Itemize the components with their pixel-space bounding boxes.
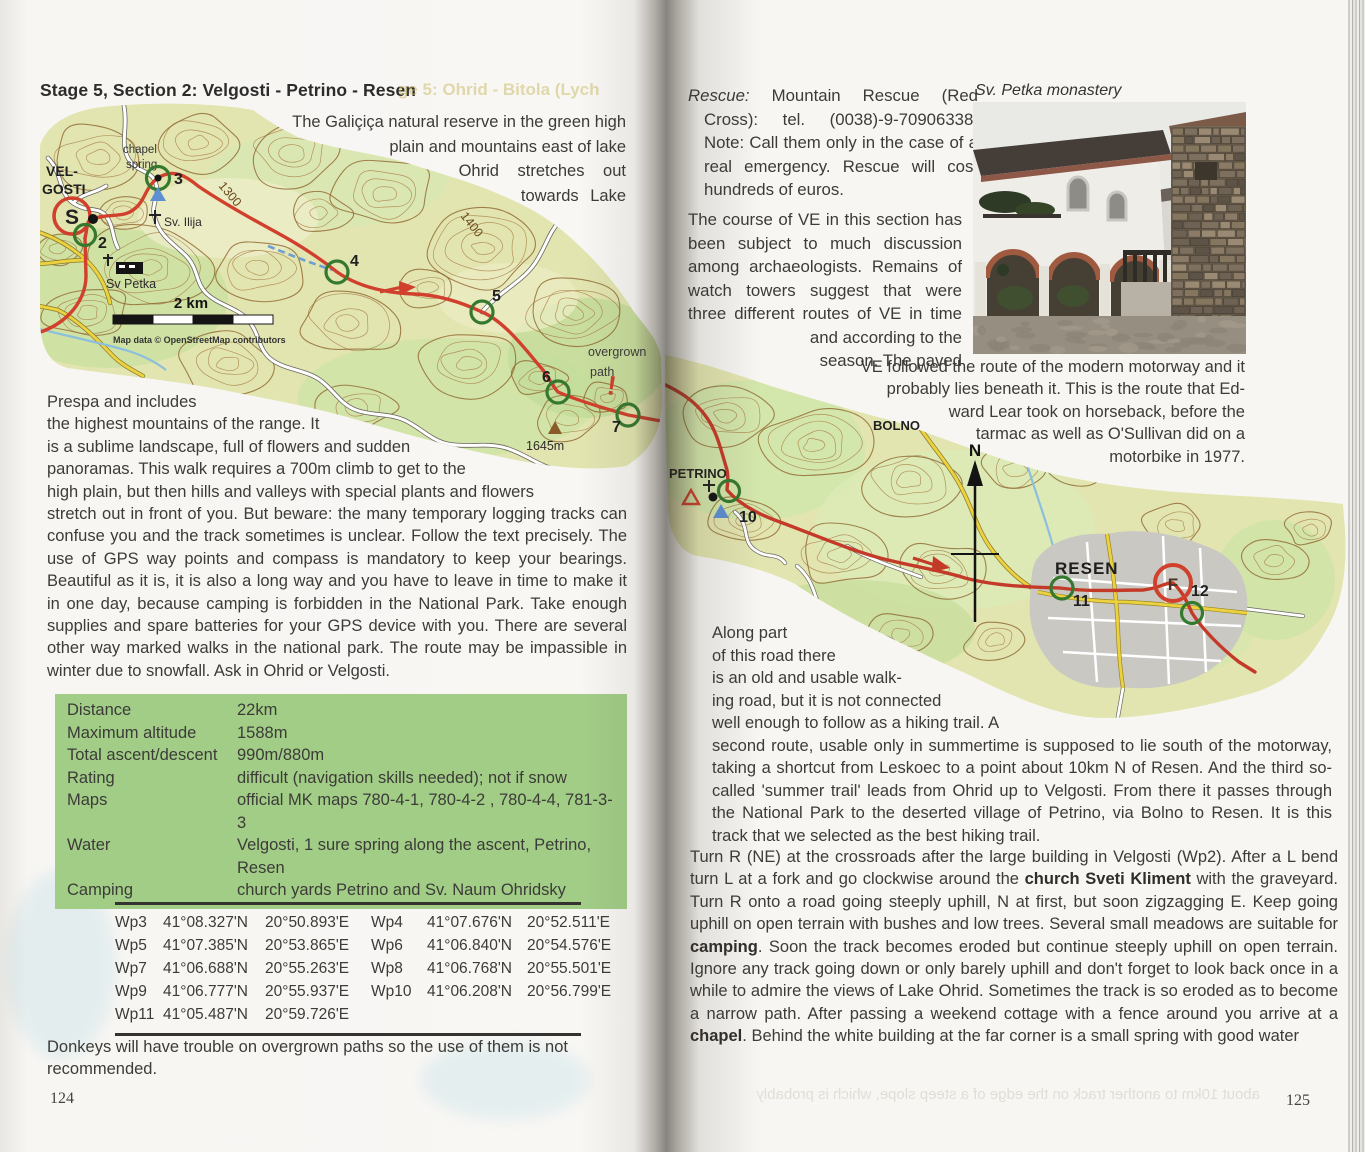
wp-id: Wp5 [115,934,163,957]
table-row: Wp1141°05.487'N20°59.726'E [115,1003,581,1026]
photo-caption: Sv. Petka monastery [975,82,1121,100]
table-row: Wp541°07.385'N20°53.865'E Wp641°06.840'N… [115,934,581,957]
text-line: Prespa and includes [47,391,627,413]
table-row: Wp741°06.688'N20°55.263'E Wp841°06.768'N… [115,957,581,980]
resen-label: RESEN [1055,559,1119,578]
wp-lat [427,1003,527,1026]
text-line: been subject to much discussion [688,232,962,256]
info-value: 1588m [237,722,617,745]
info-label: Water [67,834,237,879]
table-row: Wp941°06.777'N20°55.937'E Wp1041°06.208'… [115,980,581,1003]
along-road-rest: second route, usable only in summertime … [712,735,1332,847]
wp-lat: 41°08.327'N [163,911,265,934]
wp-lat: 41°06.840'N [427,934,527,957]
wp-lat: 41°07.676'N [427,911,527,934]
info-row: Water Velgosti, 1 sure spring along the … [67,834,617,879]
terrace [1121,282,1177,316]
text-line: probably lies beneath it. This is the ro… [830,378,1245,400]
wp-id [371,1003,427,1026]
sv-petka-label: Sv Petka [106,277,156,291]
velgosti-label-1: VEL- [46,163,78,179]
info-label: Rating [67,767,237,790]
waypoint-3-label: 3 [174,171,183,188]
wp-lat: 41°07.385'N [163,934,265,957]
info-value: official MK maps 780-4-1, 780-4-2 , 780-… [237,789,617,834]
column [975,262,986,316]
info-row: Total ascent/descent 990m/880m [67,744,617,767]
waypoint-11-label: 11 [1073,593,1090,610]
body-paragraph: Prespa and includes the highest mountain… [47,391,627,682]
info-label: Distance [67,699,237,722]
wp-id: Wp6 [371,934,427,957]
text-line: watch towers suggest that were [688,279,962,303]
info-value: church yards Petrino and Sv. Naum Ohrids… [237,879,617,902]
column [1039,266,1049,316]
petrino-label: PETRINO [669,466,727,481]
waypoint-table: Wp341°08.327'N20°50.893'E Wp441°07.676'N… [115,902,581,1036]
bold-camping: camping [690,938,758,956]
sv-ilija-label: Sv. Ilija [164,215,202,229]
wp-lat: 41°06.768'N [427,957,527,980]
arched-window [1068,177,1088,210]
wp-id: Wp8 [371,957,427,980]
wp-lon: 20°55.501'E [527,957,611,980]
info-label: Total ascent/descent [67,744,237,767]
donkeys-note: Donkeys will have trouble on overgrown p… [47,1036,635,1081]
page-stack-edge [1348,0,1365,1152]
directions-text: . Behind the white building at the far c… [742,1027,1299,1045]
intro-paragraph: The Galiçiça natural reserve in the gree… [252,110,626,208]
text-line: of this road there [712,645,1352,668]
showthrough-heading: ge 5: Ohrid - Bitola (Lych [398,80,600,100]
start-label: S [65,206,79,229]
route-info-table: Distance 22km Maximum altitude 1588m Tot… [55,694,627,909]
ve-route-paragraph: VE followed the route of the modern moto… [830,356,1245,468]
wp-lon: 20°54.576'E [527,934,611,957]
course-paragraph: The course of VE in this section has bee… [688,208,962,373]
info-row: Maximum altitude 1588m [67,722,617,745]
monastery-photo [973,102,1246,354]
showthrough-text: about 10km to another track on the edge … [700,1086,1260,1103]
text-line: three different routes of VE in time [688,302,962,326]
wp-id: Wp11 [115,1003,163,1026]
text-line: is a sublime landscape, full of flowers … [47,436,627,458]
village-dot [709,493,718,502]
map-attribution: Map data © OpenStreetMap contributors [113,335,286,345]
waypoint-12-label: 12 [1191,583,1209,600]
waypoint-10-label: 10 [739,509,757,526]
waypoint-5-label: 5 [492,288,501,305]
overgrown-path-label-1: overgrown [588,345,646,359]
wp-id: Wp4 [371,911,427,934]
text-line: well enough to follow as a hiking trail.… [712,712,1352,735]
wp-lon: 20°56.799'E [527,980,611,1003]
bold-church-sveti-kliment: church Sveti Kliment [1025,870,1191,888]
finish-label: F [1168,575,1178,594]
info-value: difficult (navigation skills needed); no… [237,767,617,790]
wp-lat: 41°06.777'N [163,980,265,1003]
village-dot [88,214,98,224]
wp-lon [527,1003,581,1026]
info-value: Velgosti, 1 sure spring along the ascent… [237,834,617,879]
text-line: towards Lake [252,184,626,209]
info-row: Rating difficult (navigation skills need… [67,767,617,790]
info-row: Maps official MK maps 780-4-1, 780-4-2 ,… [67,789,617,834]
wp-id: Wp3 [115,911,163,934]
wp-lon: 20°50.893'E [265,911,371,934]
info-value: 990m/880m [237,744,617,767]
text-line: and according to the [688,326,962,350]
wp-lon: 20°53.865'E [265,934,371,957]
waypoint-4-label: 4 [350,253,359,270]
page-number-left: 124 [50,1090,74,1108]
info-label: Camping [67,879,237,902]
wp-lat: 41°05.487'N [163,1003,265,1026]
text-line: the highest mountains of the range. It [47,413,627,435]
text-line: VE followed the route of the modern moto… [830,356,1245,378]
text-line: is an old and usable walk- [712,667,1352,690]
along-road-paragraph: Along part of this road there is an old … [712,622,1352,847]
directions-text: . Soon the track becomes eroded but cont… [690,938,1338,1023]
page-number-right: 125 [1250,1092,1310,1110]
wp-lon: 20°55.937'E [265,980,371,1003]
text-line: panoramas. This walk requires a 700m cli… [47,458,627,480]
wp-lat: 41°06.208'N [427,980,527,1003]
wp-id: Wp10 [371,980,427,1003]
text-line: high plain, but then hills and valleys w… [47,481,627,503]
waypoint-2-label: 2 [98,235,107,252]
wp-id: Wp7 [115,957,163,980]
text-line: motorbike in 1977. [830,446,1245,468]
body-paragraph-rest: stretch out in front of you. But beware:… [47,503,627,682]
wp-lat: 41°06.688'N [163,957,265,980]
text-line: Ohrid stretches out [252,159,626,184]
info-label: Maps [67,789,237,834]
info-label: Maximum altitude [67,722,237,745]
text-line: ing road, but it is not connected [712,690,1352,713]
text-line: Along part [712,622,1352,645]
column [1100,264,1110,316]
book-spread: Stage 5, Section 2: Velgosti - Petrino -… [0,0,1365,1152]
velgosti-label-2: GOSTI [42,181,86,197]
waypoint-6-label: 6 [542,369,551,386]
text-line: plain and mountains east of lake [252,135,626,160]
info-row: Camping church yards Petrino and Sv. Nau… [67,879,617,902]
wp-lon: 20°59.726'E [265,1003,371,1026]
text-line: ward Lear took on horseback, before the [830,401,1245,423]
wp-lon: 20°52.511'E [527,911,610,934]
rescue-lead: Rescue: [688,86,750,105]
rescue-paragraph: Rescue: Mountain Rescue (Red Cross): tel… [688,84,978,202]
info-value: 22km [237,699,617,722]
text-line: The Galiçiça natural reserve in the gree… [252,110,626,135]
wp-lon: 20°55.263'E [265,957,371,980]
stone-window [1195,162,1217,180]
scale-label: 2 km [174,295,208,312]
text-line: tarmac as well as O'Sullivan did on a [830,423,1245,445]
wp-id: Wp9 [115,980,163,1003]
info-row: Distance 22km [67,699,617,722]
table-row: Wp341°08.327'N20°50.893'E Wp441°07.676'N… [115,911,581,934]
chapel-label: chapel [123,144,157,156]
text-line: The course of VE in this section has [688,208,962,232]
bold-chapel: chapel [690,1027,742,1045]
hanging-plant [997,264,1009,276]
arched-window [1108,192,1126,220]
directions-paragraph: Turn R (NE) at the crossroads after the … [690,846,1338,1048]
text-line: among archaeologists. Remains of [688,255,962,279]
